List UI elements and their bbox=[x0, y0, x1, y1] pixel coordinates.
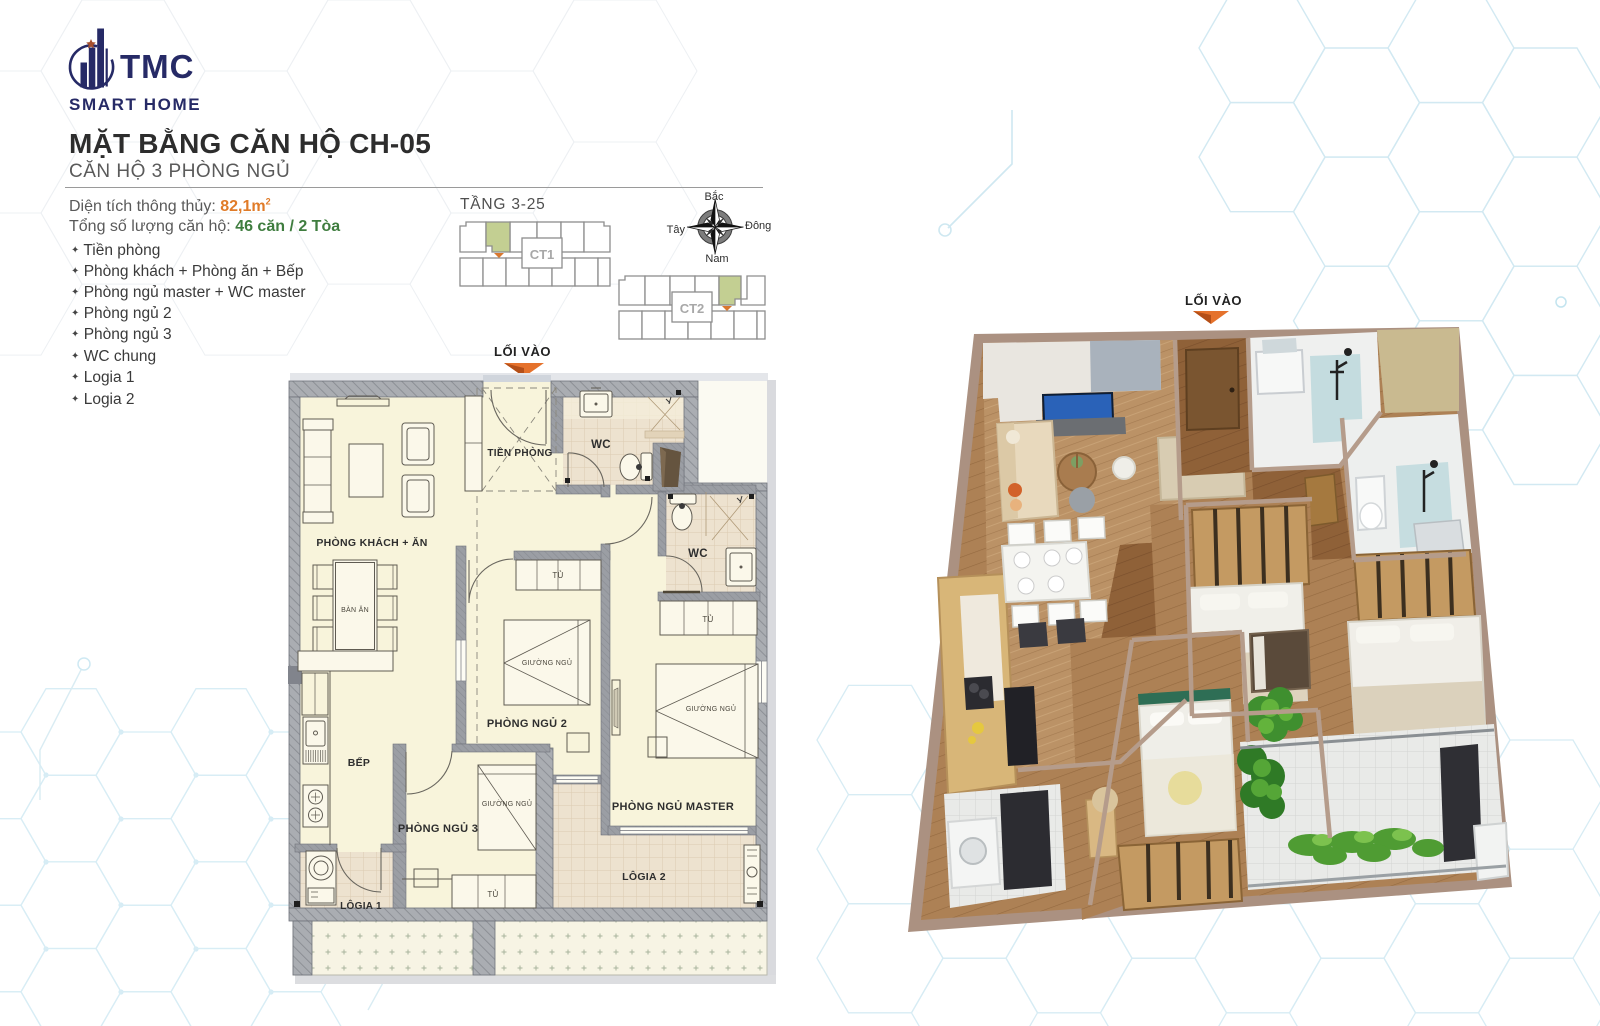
svg-text:TỦ: TỦ bbox=[487, 890, 498, 899]
svg-text:WC: WC bbox=[591, 439, 611, 451]
svg-text:GIƯỜNG NGỦ: GIƯỜNG NGỦ bbox=[522, 658, 572, 667]
svg-text:LÔGIA 1: LÔGIA 1 bbox=[340, 899, 382, 912]
svg-text:Bắc: Bắc bbox=[705, 190, 724, 203]
svg-text:TỦ: TỦ bbox=[702, 615, 713, 624]
svg-text:TIỀN PHÒNG: TIỀN PHÒNG bbox=[487, 446, 552, 459]
svg-text:PHÒNG KHÁCH + ĂN: PHÒNG KHÁCH + ĂN bbox=[316, 536, 427, 549]
svg-text:Nam: Nam bbox=[705, 253, 728, 265]
svg-text:BÀN ĂN: BÀN ĂN bbox=[341, 605, 369, 614]
svg-text:GIƯỜNG NGỦ: GIƯỜNG NGỦ bbox=[686, 704, 736, 713]
svg-text:TỦ: TỦ bbox=[552, 571, 563, 580]
svg-text:GIƯỜNG NGỦ: GIƯỜNG NGỦ bbox=[482, 799, 532, 808]
svg-text:PHÒNG NGỦ 3: PHÒNG NGỦ 3 bbox=[398, 822, 478, 835]
svg-text:CT1: CT1 bbox=[530, 247, 555, 262]
svg-text:SMART HOME: SMART HOME bbox=[69, 95, 201, 114]
svg-text:WC: WC bbox=[688, 548, 708, 560]
svg-text:LÔGIA 2: LÔGIA 2 bbox=[622, 870, 666, 883]
svg-text:PHÒNG NGỦ 2: PHÒNG NGỦ 2 bbox=[487, 717, 567, 730]
svg-text:CT2: CT2 bbox=[680, 301, 705, 316]
svg-text:Đông: Đông bbox=[745, 220, 771, 232]
svg-text:Tây: Tây bbox=[667, 224, 686, 236]
svg-text:TMC: TMC bbox=[120, 48, 194, 85]
svg-text:PHÒNG NGỦ MASTER: PHÒNG NGỦ MASTER bbox=[612, 800, 734, 813]
svg-text:BẾP: BẾP bbox=[348, 756, 371, 769]
